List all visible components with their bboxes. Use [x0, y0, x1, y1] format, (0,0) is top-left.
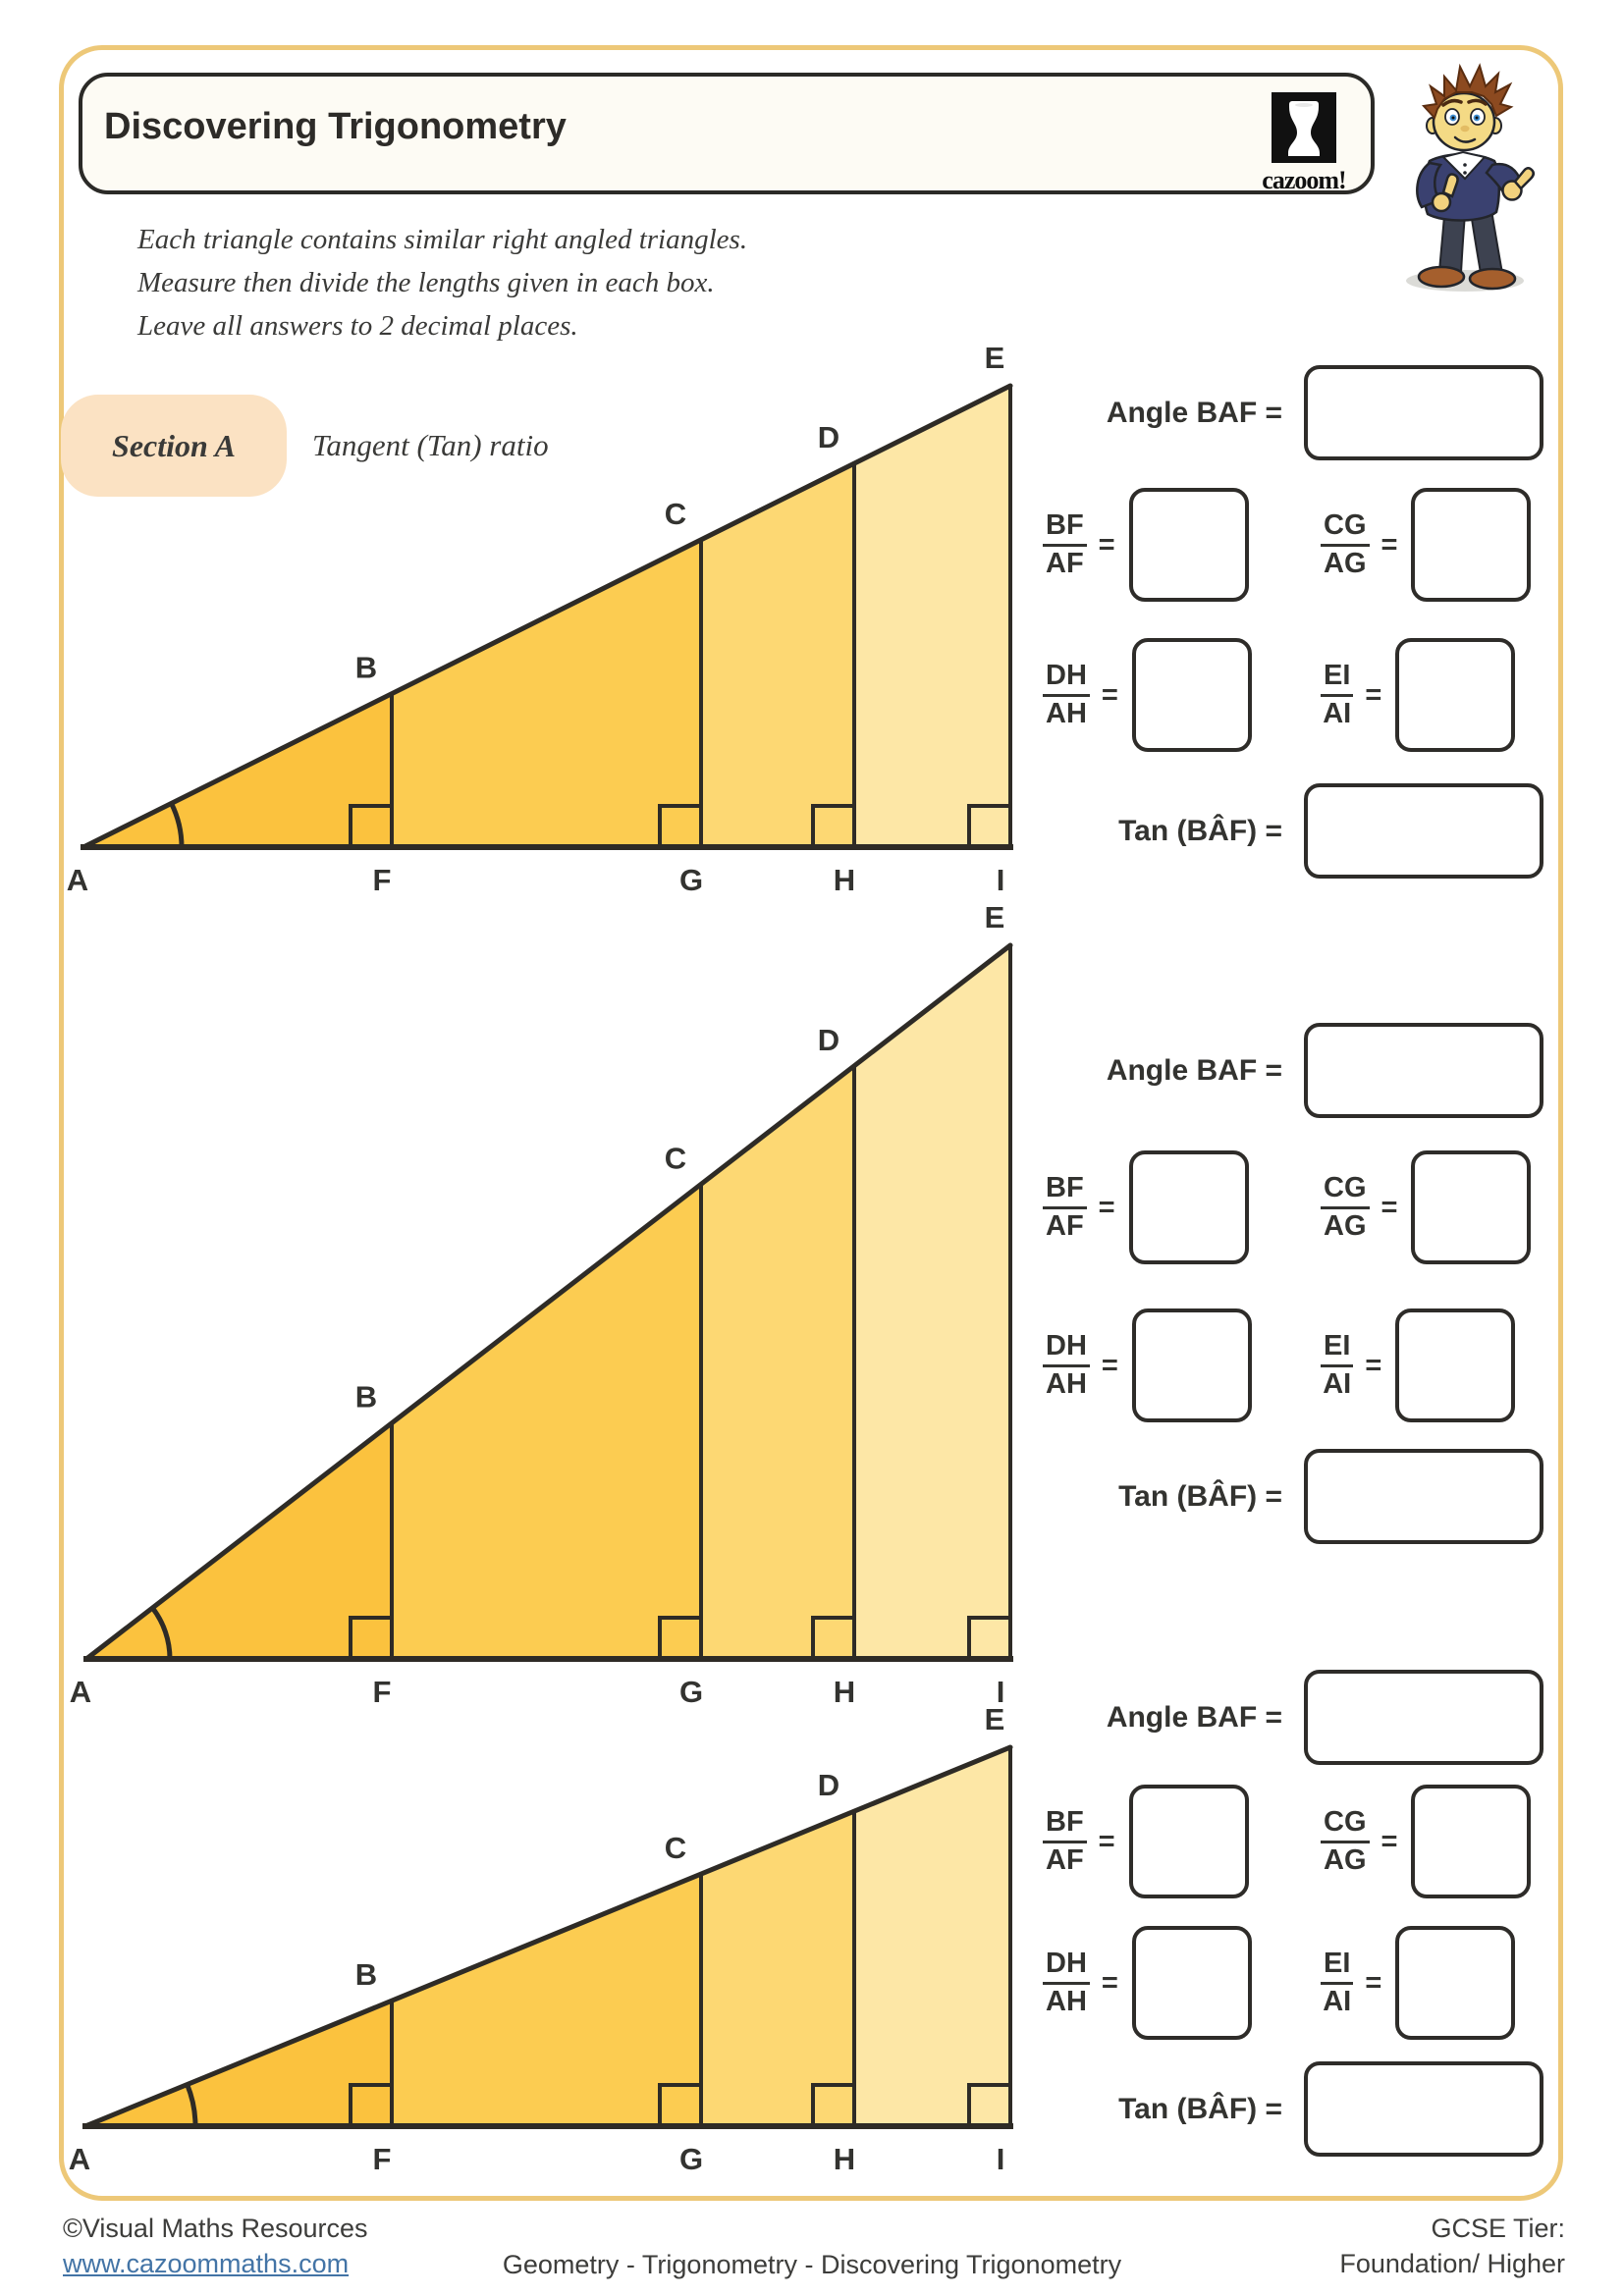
angle-baf-label: Angle BAF = — [1021, 397, 1282, 430]
fraction-bf-af: BF AF — [1043, 1807, 1087, 1877]
fraction-bf-af: BF AF — [1043, 510, 1087, 580]
ei-ai-answer-box[interactable] — [1395, 638, 1515, 752]
fraction-cg-ag: CG AG — [1321, 1807, 1370, 1877]
bf-af-answer-box[interactable] — [1129, 1785, 1249, 1898]
angle-row: Angle BAF = — [1021, 365, 1543, 460]
fraction-cg-ag: CG AG — [1321, 1173, 1370, 1243]
fraction-ei-ai: EI AI — [1321, 1331, 1353, 1401]
mascot-boy-thumbs-up-icon — [1386, 55, 1551, 294]
fraction-dh-ah: DH AH — [1043, 661, 1090, 730]
footer-right: GCSE Tier: Foundation/ Higher — [1339, 2211, 1565, 2281]
cg-ag-answer-box[interactable] — [1411, 488, 1531, 602]
cg-ag-answer-box[interactable] — [1411, 1150, 1531, 1264]
dh-ah-answer-box[interactable] — [1132, 1308, 1252, 1422]
ei-ai-unit: EI AI = — [1321, 1308, 1515, 1422]
fraction-dh-ah: DH AH — [1043, 1331, 1090, 1401]
cg-ag-answer-box[interactable] — [1411, 1785, 1531, 1898]
angle-baf-answer-box[interactable] — [1304, 365, 1543, 460]
cg-ag-unit: CG AG = — [1321, 1150, 1531, 1264]
tier-label: GCSE Tier: — [1339, 2211, 1565, 2246]
fraction-cg-ag: CG AG — [1321, 510, 1370, 580]
fraction-ei-ai: EI AI — [1321, 661, 1353, 730]
fraction-row-1: BF AF = CG AG = — [0, 1150, 1624, 1264]
tan-baf-label: Tan (BÂF) = — [1021, 815, 1282, 848]
fraction-row-2: DH AH = EI AI = — [0, 638, 1624, 752]
fraction-row-2: DH AH = EI AI = — [0, 1926, 1624, 2040]
fraction-bf-af: BF AF — [1043, 1173, 1087, 1243]
bf-af-unit: BF AF = — [1043, 1785, 1249, 1898]
fraction-row-2: DH AH = EI AI = — [0, 1308, 1624, 1422]
ei-ai-answer-box[interactable] — [1395, 1926, 1515, 2040]
angle-baf-answer-box[interactable] — [1304, 1023, 1543, 1118]
angle-row: Angle BAF = — [1021, 1023, 1543, 1118]
dh-ah-answer-box[interactable] — [1132, 638, 1252, 752]
fraction-row-1: BF AF = CG AG = — [0, 1785, 1624, 1898]
section-badge: Section A — [61, 395, 287, 497]
instructions: Each triangle contains similar right ang… — [137, 218, 747, 347]
bf-af-answer-box[interactable] — [1129, 1150, 1249, 1264]
section-badge-label: Section A — [112, 428, 236, 464]
bf-af-unit: BF AF = — [1043, 488, 1249, 602]
cg-ag-unit: CG AG = — [1321, 488, 1531, 602]
tan-baf-answer-box[interactable] — [1304, 2061, 1543, 2157]
tan-row: Tan (BÂF) = — [1021, 1449, 1543, 1544]
page-title: Discovering Trigonometry — [104, 106, 567, 148]
tan-baf-label: Tan (BÂF) = — [1021, 1480, 1282, 1514]
angle-baf-label: Angle BAF = — [1021, 1701, 1282, 1735]
copyright-text: ©Visual Maths Resources — [63, 2211, 368, 2246]
instruction-line: Leave all answers to 2 decimal places. — [137, 304, 747, 347]
angle-baf-label: Angle BAF = — [1021, 1054, 1282, 1088]
ei-ai-unit: EI AI = — [1321, 1926, 1515, 2040]
dh-ah-answer-box[interactable] — [1132, 1926, 1252, 2040]
dh-ah-unit: DH AH = — [1043, 1308, 1252, 1422]
cazoom-vase-icon — [1272, 92, 1336, 163]
tan-row: Tan (BÂF) = — [1021, 2061, 1543, 2157]
worksheet-page: Discovering Trigonometry cazoom! — [0, 0, 1624, 2296]
tan-baf-answer-box[interactable] — [1304, 783, 1543, 879]
fraction-dh-ah: DH AH — [1043, 1949, 1090, 2018]
angle-baf-answer-box[interactable] — [1304, 1670, 1543, 1765]
tan-baf-answer-box[interactable] — [1304, 1449, 1543, 1544]
instruction-line: Measure then divide the lengths given in… — [137, 261, 747, 304]
fraction-row-1: BF AF = CG AG = — [0, 488, 1624, 602]
dh-ah-unit: DH AH = — [1043, 638, 1252, 752]
section-title: Tangent (Tan) ratio — [312, 428, 549, 463]
dh-ah-unit: DH AH = — [1043, 1926, 1252, 2040]
cazoom-logo: cazoom! — [1247, 92, 1361, 195]
cg-ag-unit: CG AG = — [1321, 1785, 1531, 1898]
instruction-line: Each triangle contains similar right ang… — [137, 218, 747, 261]
bf-af-answer-box[interactable] — [1129, 488, 1249, 602]
ei-ai-answer-box[interactable] — [1395, 1308, 1515, 1422]
tan-row: Tan (BÂF) = — [1021, 783, 1543, 879]
ei-ai-unit: EI AI = — [1321, 638, 1515, 752]
angle-row: Angle BAF = — [1021, 1670, 1543, 1765]
bf-af-unit: BF AF = — [1043, 1150, 1249, 1264]
fraction-ei-ai: EI AI — [1321, 1949, 1353, 2018]
tan-baf-label: Tan (BÂF) = — [1021, 2093, 1282, 2126]
tier-value: Foundation/ Higher — [1339, 2246, 1565, 2281]
cazoom-brand-text: cazoom! — [1247, 166, 1361, 195]
title-box: Discovering Trigonometry cazoom! — [79, 73, 1375, 194]
